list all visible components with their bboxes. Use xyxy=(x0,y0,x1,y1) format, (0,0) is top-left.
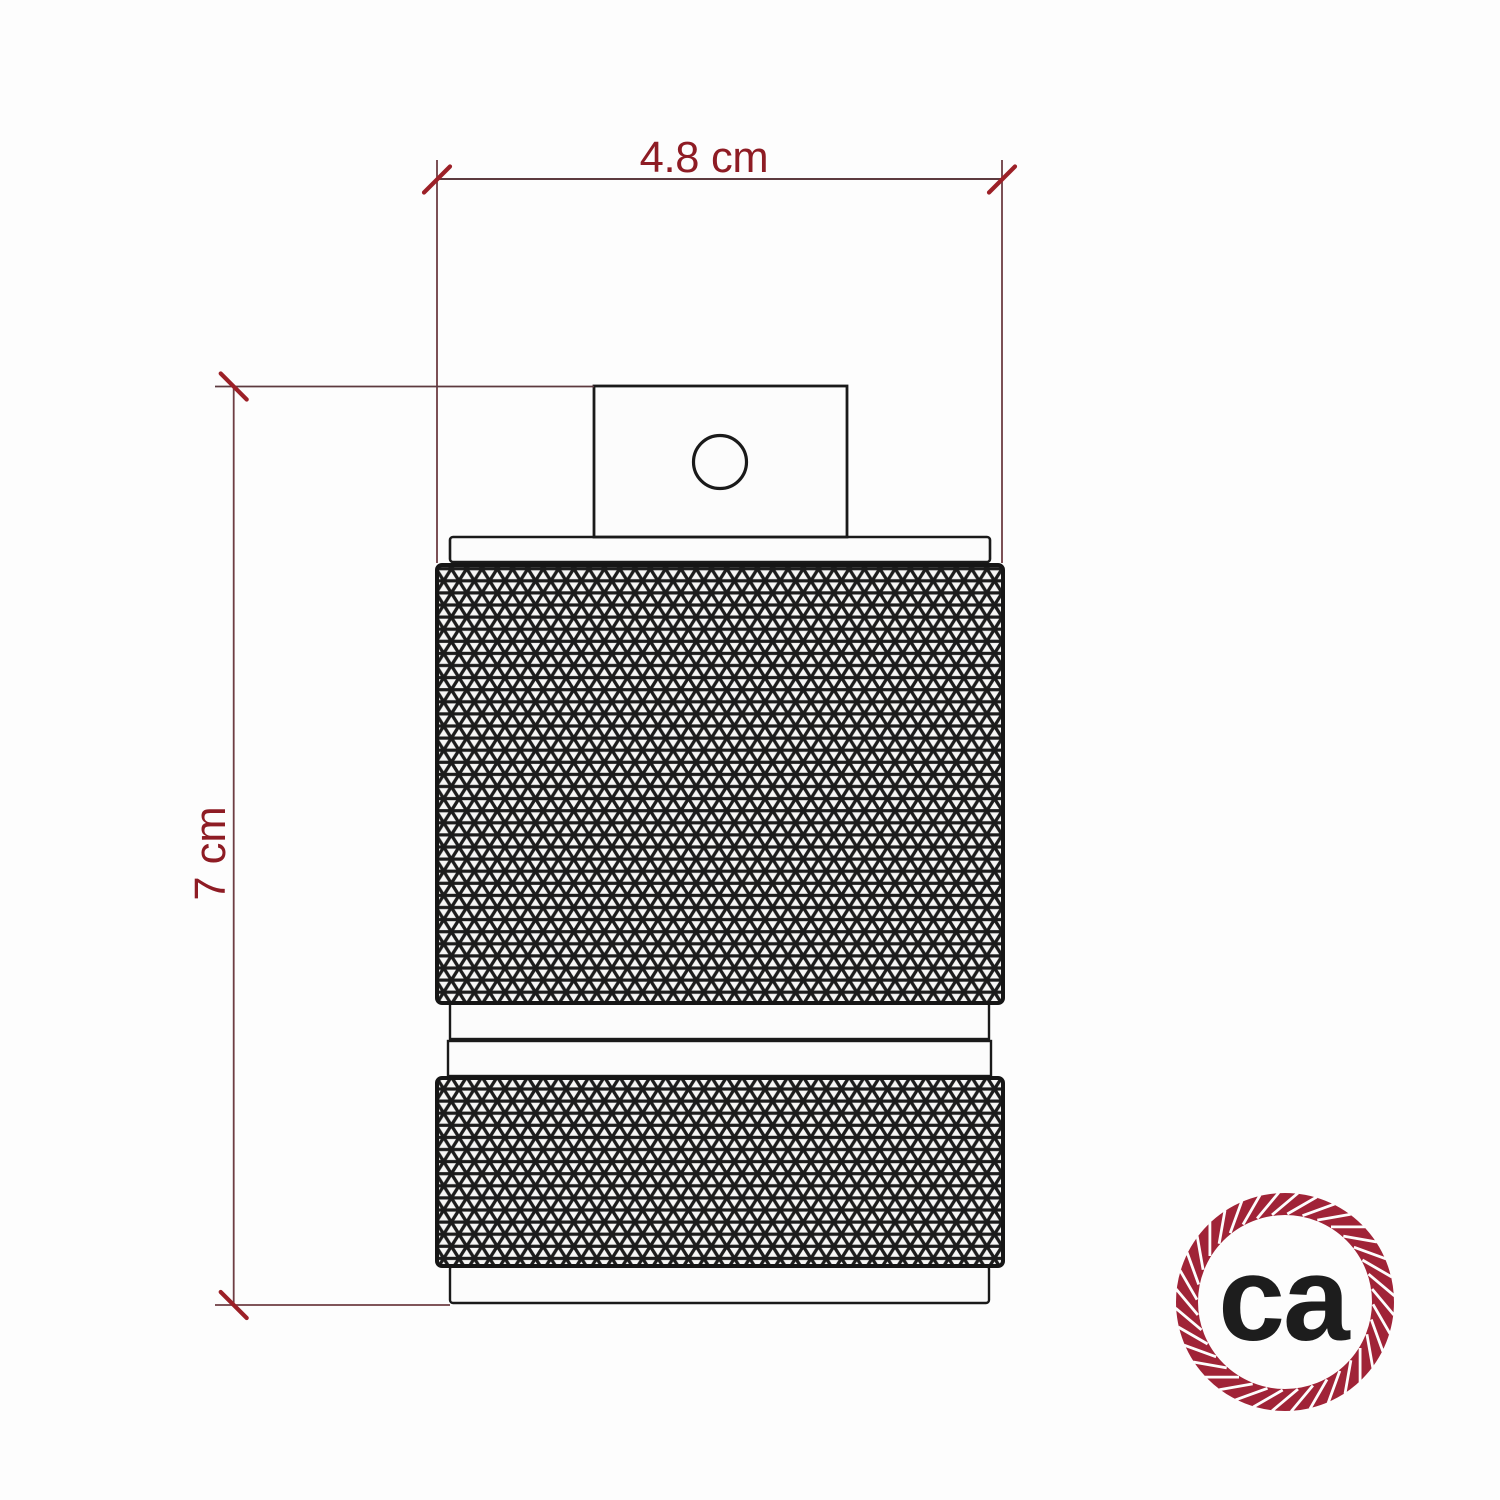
svg-text:4.8 cm: 4.8 cm xyxy=(640,134,769,182)
svg-text:ca: ca xyxy=(1218,1232,1351,1366)
svg-text:7 cm: 7 cm xyxy=(187,806,235,900)
